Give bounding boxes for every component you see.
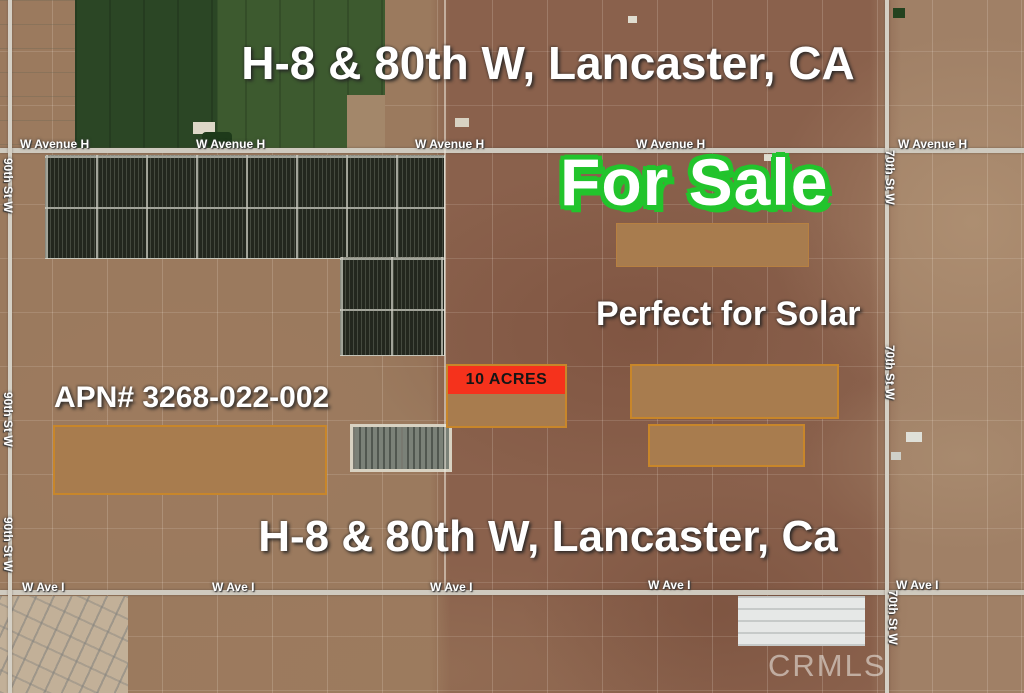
road-label-90th-st-w: 90th St W [1,158,15,213]
road-label-ave-i: W Ave I [896,578,938,592]
redacted-parcel-rect [53,425,327,495]
small-solar-array [350,424,452,472]
crmls-watermark: CRMLS [768,648,887,684]
listing-title-bottom: H-8 & 80th W, Lancaster, Ca [0,512,1024,562]
apn-number: APN# 3268-022-002 [54,381,329,415]
redacted-parcel-rect [648,424,805,467]
road-label-70th-st-w: 70th St W [883,150,897,205]
redacted-parcel-rect [630,364,839,419]
tree-cluster [893,8,905,18]
residential-subdivision [0,596,128,693]
building-speck [628,16,637,23]
bare-field-patch [347,95,385,148]
solar-farm-array-extension [340,257,445,356]
redacted-parcel-rect [616,223,809,267]
road-label-70th-st-w: 70th St W [883,345,897,400]
road-label-ave-i: W Ave I [430,580,472,594]
road-label-ave-i: W Ave I [212,580,254,594]
road-avenue-h [0,148,1024,153]
listing-title-top: H-8 & 80th W, Lancaster, CA [0,36,1024,90]
road-label-ave-i: W Ave I [22,580,64,594]
road-label-avenue-h: W Avenue H [196,137,265,151]
building-speck [906,432,922,442]
road-label-avenue-h: W Avenue H [415,137,484,151]
road-90th-st-w [8,0,12,693]
for-sale-banner: For Sale [560,144,828,220]
road-label-90th-st-w: 90th St W [1,392,15,447]
subject-parcel-10-acres: 10 ACRES [446,364,567,428]
road-label-70th-st-w: 70th St W [886,590,900,645]
solar-farm-array [45,155,445,259]
acreage-badge: 10 ACRES [448,366,565,394]
road-ave-i [0,590,1024,595]
road-label-ave-i: W Ave I [648,578,690,592]
building-speck [891,452,901,460]
tagline-perfect-for-solar: Perfect for Solar [596,295,861,334]
industrial-building [738,596,865,646]
building-speck [455,118,469,127]
road-label-avenue-h: W Avenue H [20,137,89,151]
road-label-avenue-h: W Avenue H [898,137,967,151]
satellite-map: 10 ACRES W Avenue H W Avenue H W Avenue … [0,0,1024,693]
